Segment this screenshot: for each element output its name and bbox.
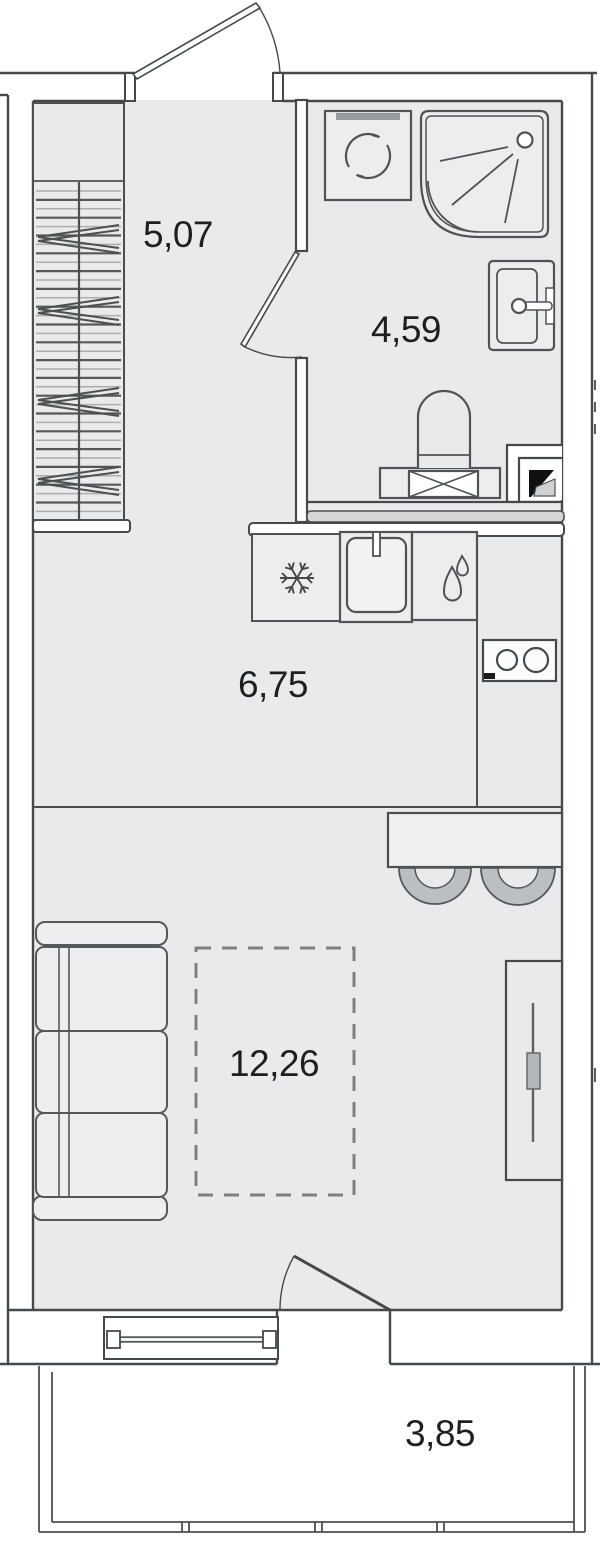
svg-text:5,07: 5,07 (143, 214, 213, 255)
svg-text:6,75: 6,75 (238, 664, 308, 705)
svg-text:4,59: 4,59 (371, 309, 441, 350)
svg-text:3,85: 3,85 (405, 1413, 475, 1454)
svg-text:12,26: 12,26 (229, 1043, 319, 1084)
